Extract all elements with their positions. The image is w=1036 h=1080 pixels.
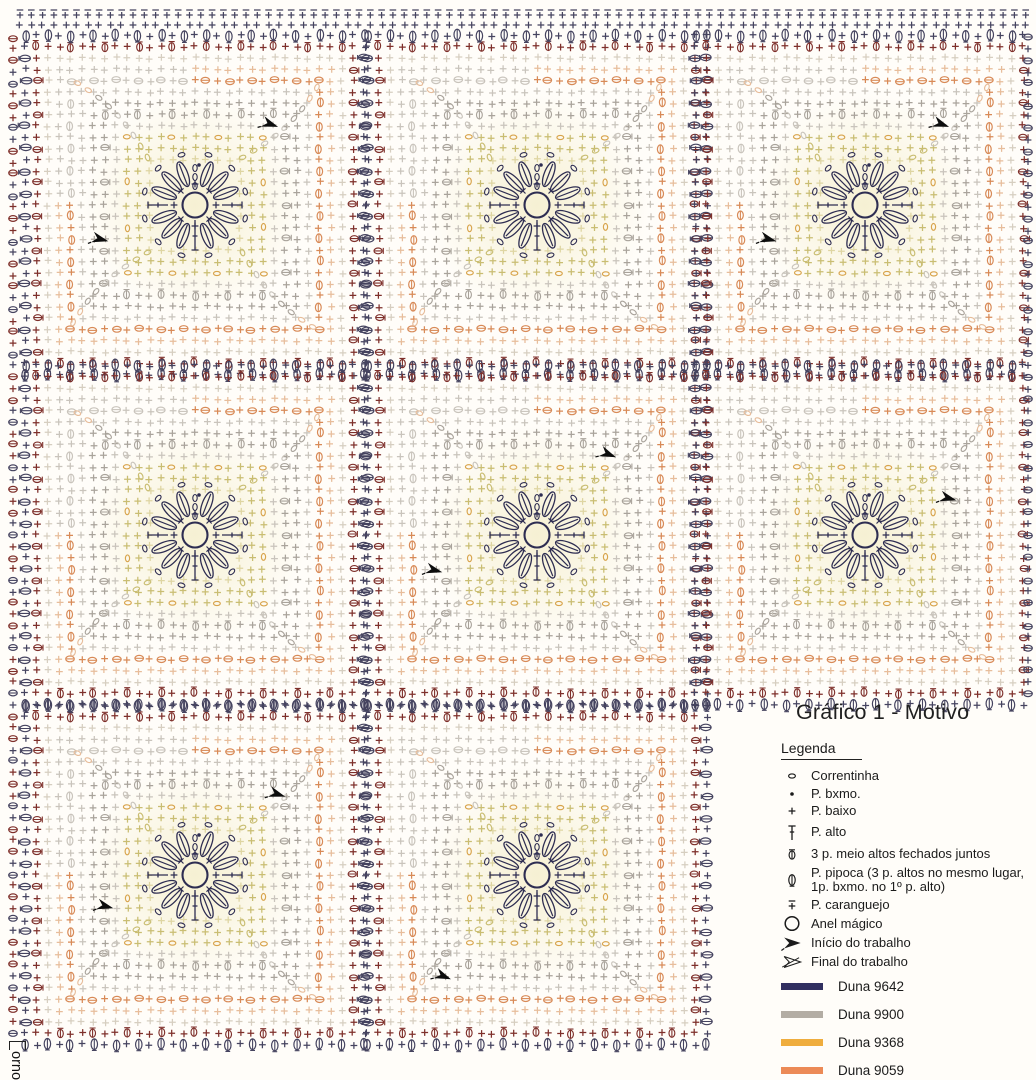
legend-item: Final do trabalho [781, 954, 1033, 970]
start-arrow-icon [781, 935, 803, 951]
legend-item: Início do trabalho [781, 935, 1033, 951]
legend-items: CorrentinhaP. bxmo.P. baixoP. alto3 p. m… [781, 769, 1033, 970]
end-arrow-icon [781, 954, 803, 970]
legend-heading: Legenda [781, 740, 862, 760]
slip-icon [781, 788, 803, 800]
single-icon [781, 805, 803, 817]
legend-item: P. bxmo. [781, 787, 1033, 802]
legend-colors: Duna 9642Duna 9900Duna 9368Duna 9059Duna… [781, 979, 1033, 1080]
crochet-pattern-page: Gráfico 1 - Motivo Legenda CorrentinhaP.… [0, 0, 1036, 1080]
row-end-bracket [9, 1041, 26, 1050]
legend-item-label: P. pipoca (3 p. altos no mesmo lugar, 1p… [811, 866, 1033, 895]
legend-item-label: 3 p. meio altos fechados juntos [811, 847, 990, 862]
legend-item-label: P. caranguejo [811, 898, 890, 913]
legend-item-label: P. bxmo. [811, 787, 861, 802]
legend-item-label: P. baixo [811, 804, 856, 819]
double-icon [781, 822, 803, 844]
color-swatch [781, 1039, 823, 1046]
legend-item: P. alto [781, 822, 1033, 844]
popcorn-icon [781, 869, 803, 891]
legend-item: P. pipoca (3 p. altos no mesmo lugar, 1p… [781, 866, 1033, 895]
magic-ring-icon [781, 915, 803, 932]
color-swatch [781, 983, 823, 990]
legend-panel: Legenda CorrentinhaP. bxmo.P. baixoP. al… [781, 740, 1033, 1080]
legend-item-label: Final do trabalho [811, 955, 908, 970]
color-name: Duna 9059 [838, 1063, 904, 1078]
chain-icon [781, 770, 803, 782]
color-name: Duna 9368 [838, 1035, 904, 1050]
color-row: Duna 9368 [781, 1035, 1033, 1050]
color-swatch [781, 1011, 823, 1018]
color-name: Duna 9642 [838, 979, 904, 994]
legend-item: Correntinha [781, 769, 1033, 784]
color-row: Duna 9900 [781, 1007, 1033, 1022]
side-label: orno [8, 1051, 24, 1080]
legend-item: P. baixo [781, 804, 1033, 819]
color-row: Duna 9059 [781, 1063, 1033, 1078]
legend-item-label: Início do trabalho [811, 936, 911, 951]
color-row: Duna 9642 [781, 979, 1033, 994]
crab-icon [781, 898, 803, 912]
legend-item: Anel mágico [781, 915, 1033, 932]
legend-item-label: P. alto [811, 825, 846, 840]
legend-item-label: Correntinha [811, 769, 879, 784]
legend-item-label: Anel mágico [811, 917, 883, 932]
cluster-icon [781, 847, 803, 863]
color-swatch [781, 1067, 823, 1074]
legend-item: 3 p. meio altos fechados juntos [781, 847, 1033, 863]
chart-title: Gráfico 1 - Motivo [796, 700, 969, 725]
color-name: Duna 9900 [838, 1007, 904, 1022]
legend-item: P. caranguejo [781, 898, 1033, 913]
